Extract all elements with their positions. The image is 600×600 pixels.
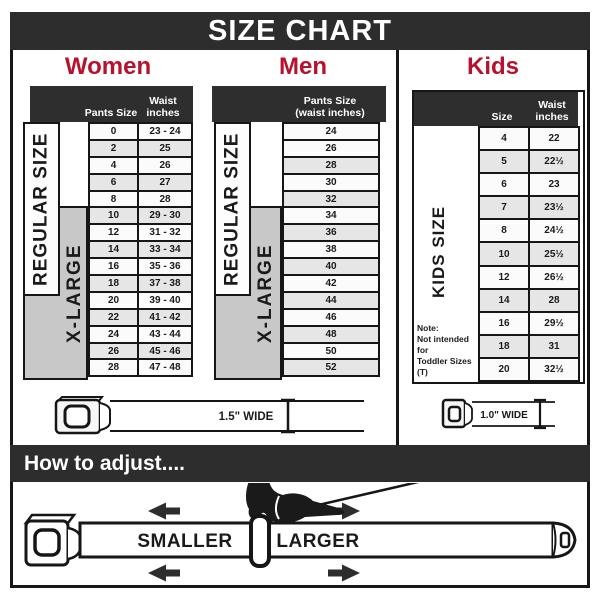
kids-width-label: 1.0" WIDE	[480, 410, 528, 421]
men-regular-size-label: REGULAR SIZE	[216, 124, 249, 294]
size-cell: 20	[478, 357, 530, 382]
waist-inches-cell: 22½	[528, 149, 580, 174]
buckle-latch	[465, 403, 472, 425]
table-row: 18 31	[478, 334, 580, 359]
adjust-illustration-area: SMALLER LARGER	[13, 482, 587, 584]
women-xlarge-label: X-LARGE	[62, 208, 88, 378]
waist-inches-cell: 23	[528, 172, 580, 197]
arrow-right-lower-icon	[328, 565, 360, 582]
size-cell: 10	[478, 241, 530, 266]
waist-inches-cell: 26½	[528, 265, 580, 290]
kids-note-line3: Toddler Sizes (T)	[417, 356, 479, 378]
waist-inches-cell: 47 - 48	[137, 358, 193, 377]
pants-size-cell: 28	[88, 358, 139, 377]
size-cell: 4	[478, 126, 530, 151]
table-row: 14 28	[478, 288, 580, 313]
kids-note-line2: Not intended for	[417, 334, 479, 356]
kids-section-divider	[396, 50, 399, 445]
size-cell: 7	[478, 195, 530, 220]
table-row: 20 32½	[478, 357, 580, 382]
women-rows: 0 23 - 24 2 25 4 26 6 2	[88, 122, 193, 377]
table-row: 52	[282, 358, 380, 377]
size-cell: 5	[478, 149, 530, 174]
table-row: 28 47 - 48	[88, 358, 193, 377]
women-table-header: Pants Size Waist inches	[30, 86, 193, 122]
men-regular-size-box: REGULAR SIZE	[214, 122, 251, 296]
waist-inches-cell: 22	[528, 126, 580, 151]
size-cell: 12	[478, 265, 530, 290]
arrow-left-lower-icon	[148, 565, 180, 582]
adult-belt-illustration: 1.5" WIDE	[53, 394, 368, 436]
size-chart-sheet: SIZE CHART Women Men Kids Pants Size Wai…	[10, 12, 590, 588]
buckle-slot	[65, 406, 89, 427]
buckle-latch	[68, 528, 80, 559]
width-ibeam-icon	[281, 400, 295, 432]
kids-heading: Kids	[418, 53, 568, 81]
arrow-left-upper-icon	[148, 503, 180, 520]
men-heading: Men	[228, 53, 378, 81]
table-row: 4 22	[478, 126, 580, 151]
table-row: 6 23	[478, 172, 580, 197]
kids-note-line1: Note:	[417, 323, 479, 334]
waist-inches-cell: 28	[528, 288, 580, 313]
waist-inches-cell: 23½	[528, 195, 580, 220]
size-cell: 8	[478, 218, 530, 243]
waist-inches-cell: 25½	[528, 241, 580, 266]
table-row: 12 26½	[478, 265, 580, 290]
men-col-header-line2: (waist inches)	[295, 107, 364, 119]
page-title: SIZE CHART	[208, 15, 392, 48]
belt-slider-clip	[251, 516, 269, 566]
adult-width-label: 1.5" WIDE	[219, 411, 274, 423]
table-row: 5 22½	[478, 149, 580, 174]
men-col-header-line1: Pants Size	[304, 95, 357, 107]
men-size-table: Pants Size (waist inches) REGULAR SIZE X…	[210, 86, 390, 380]
waist-inches-cell: 29½	[528, 311, 580, 336]
waist-inches-cell: 24½	[528, 218, 580, 243]
waist-inches-cell: 31	[528, 334, 580, 359]
table-row: 16 29½	[478, 311, 580, 336]
size-cell: 6	[478, 172, 530, 197]
kids-table-header: Size Waist inches	[414, 92, 578, 126]
size-cell: 14	[478, 288, 530, 313]
title-bar: SIZE CHART	[10, 12, 590, 50]
women-col-waist-inches: Waist inches	[142, 95, 184, 119]
larger-label: LARGER	[276, 531, 359, 552]
men-col-header: Pants Size (waist inches)	[282, 95, 378, 119]
men-rows: 24 26 28 30 32	[282, 122, 380, 377]
size-cell: 16	[478, 311, 530, 336]
kids-col-waist-inches: Waist inches	[530, 99, 574, 123]
men-table-header: Pants Size (waist inches)	[212, 86, 386, 122]
women-size-table: Pants Size Waist inches REGULAR SIZE X-L…	[23, 86, 195, 380]
kids-belt-illustration: 1.0" WIDE	[433, 396, 561, 432]
pants-size-cell: 52	[282, 358, 380, 377]
kids-note: Note: Not intended for Toddler Sizes (T)	[417, 323, 479, 378]
how-to-adjust-bar: How to adjust....	[10, 445, 590, 482]
buckle-latch	[100, 403, 110, 430]
buckle-slot	[35, 530, 59, 555]
women-col-pants-size: Pants Size	[80, 107, 142, 119]
width-ibeam-icon	[534, 400, 546, 428]
kids-col-size: Size	[476, 111, 528, 123]
belt-end-slot	[561, 533, 569, 547]
table-row: 10 25½	[478, 241, 580, 266]
table-row: 7 23½	[478, 195, 580, 220]
women-regular-size-label: REGULAR SIZE	[25, 124, 58, 294]
kids-rows: 4 22 5 22½ 6 23 7 23½	[478, 126, 580, 382]
smaller-label: SMALLER	[137, 531, 232, 552]
adjust-belt-illustration: SMALLER LARGER	[17, 483, 577, 583]
waist-inches-cell: 32½	[528, 357, 580, 382]
kids-size-table: Size Waist inches KIDS SIZE Note: Not in…	[412, 90, 585, 384]
men-xlarge-label: X-LARGE	[253, 208, 279, 378]
buckle-slot	[449, 407, 460, 421]
women-heading: Women	[33, 53, 183, 81]
size-cell: 18	[478, 334, 530, 359]
size-columns: Women Men Kids Pants Size Waist inches R…	[13, 50, 587, 445]
table-row: 8 24½	[478, 218, 580, 243]
kids-size-label: KIDS SIZE	[422, 192, 456, 312]
how-to-adjust-title: How to adjust....	[24, 452, 185, 476]
women-regular-size-box: REGULAR SIZE	[23, 122, 60, 296]
